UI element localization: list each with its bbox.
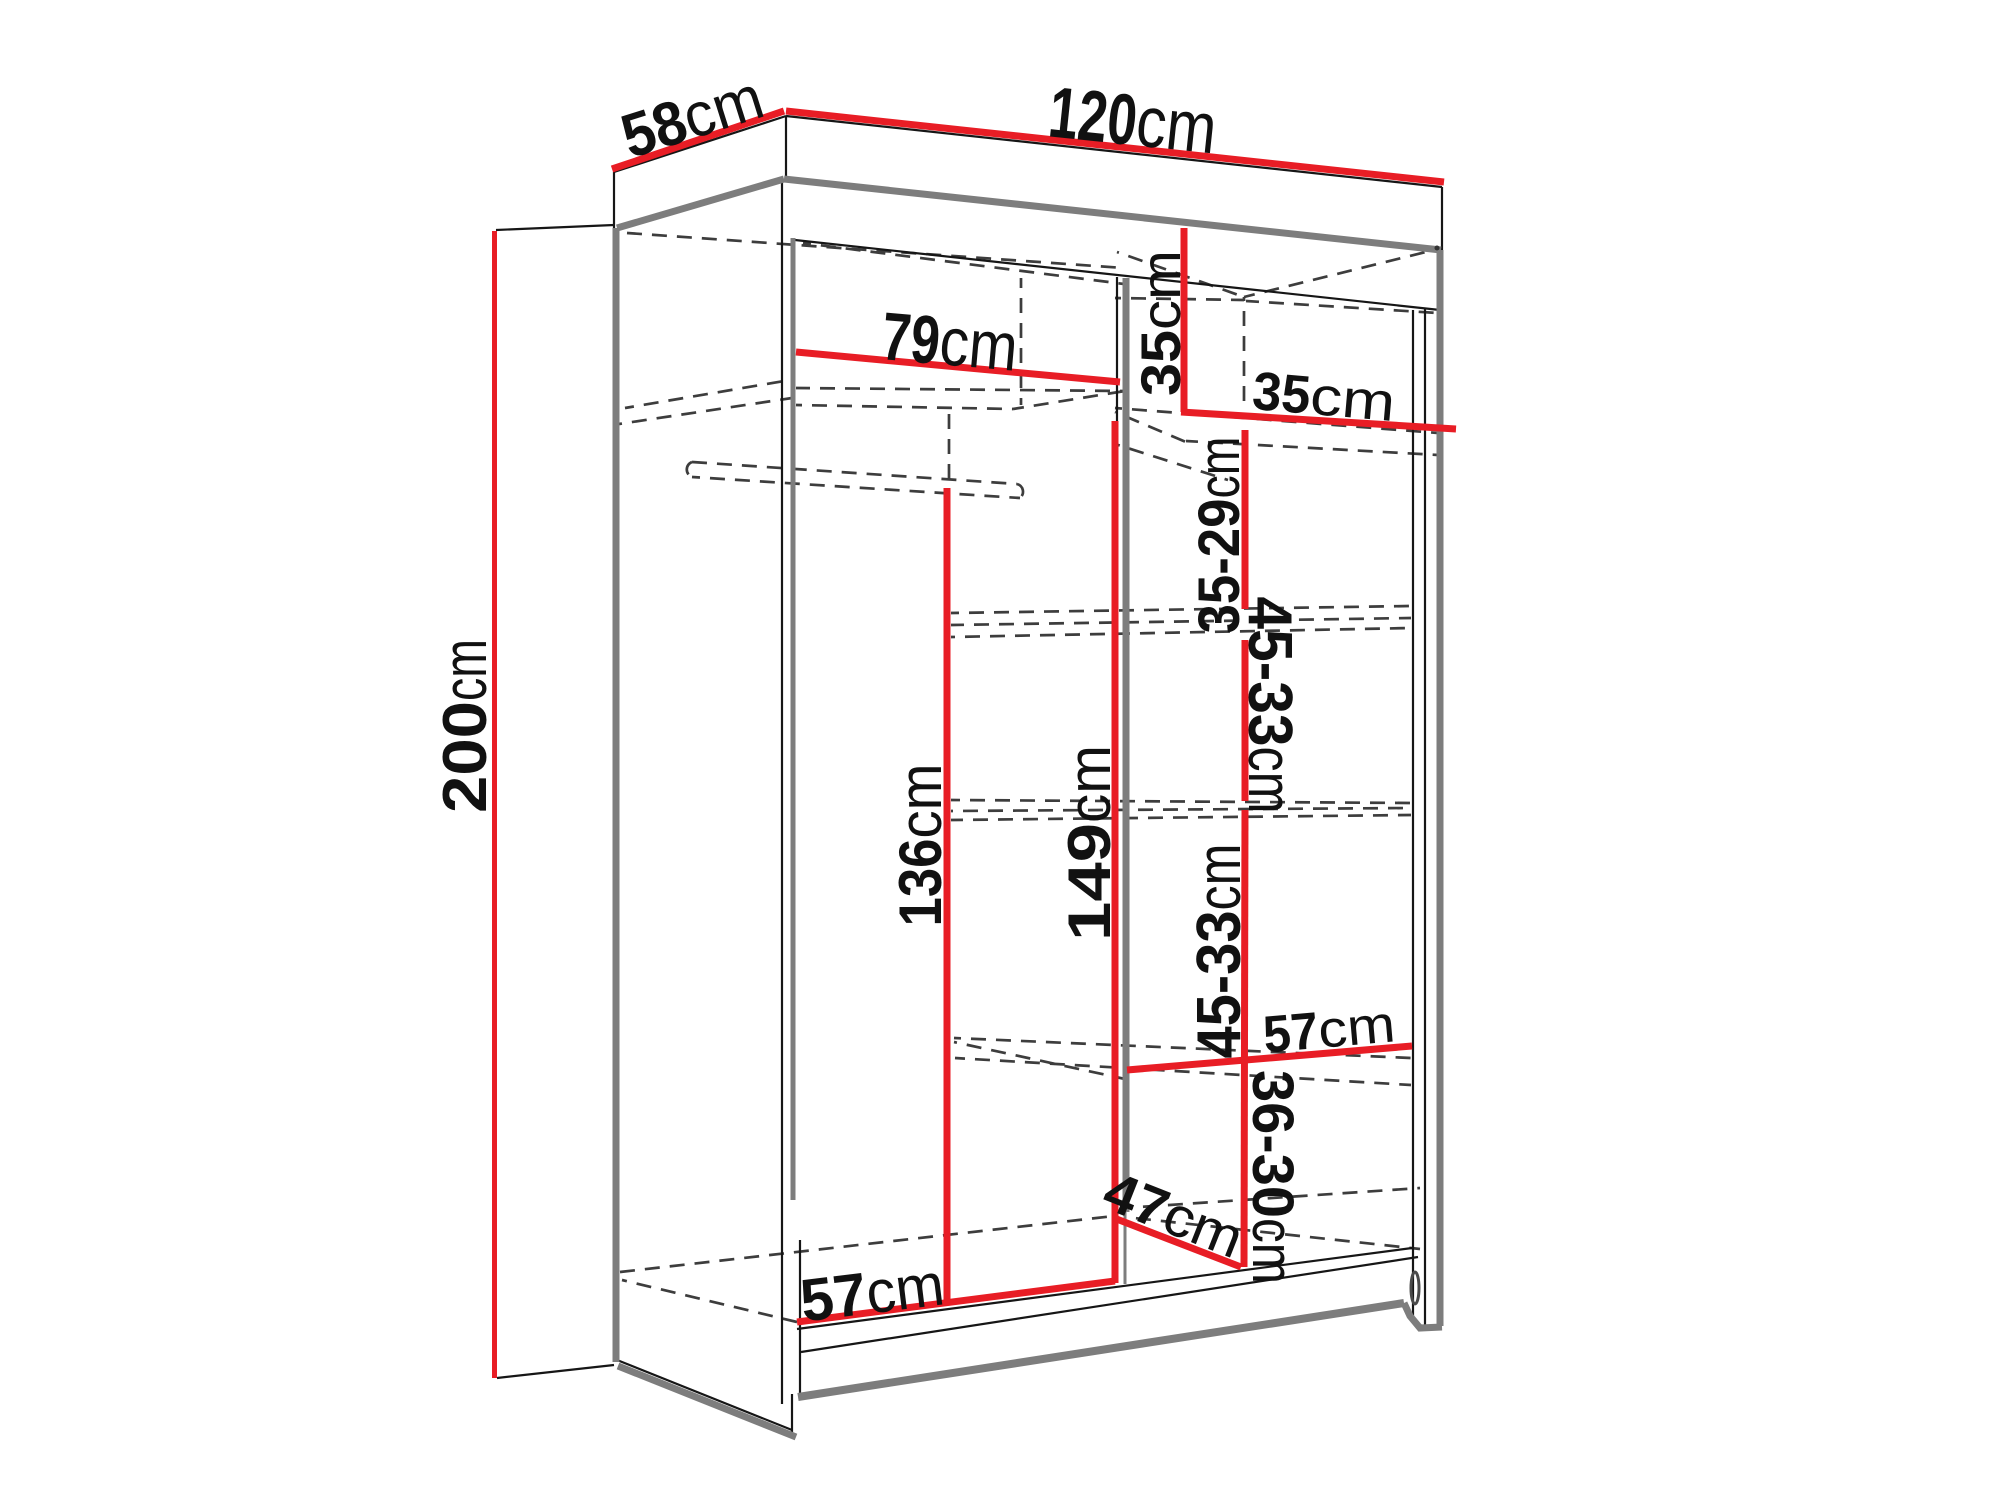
svg-text:36-30cm: 36-30cm bbox=[1240, 1070, 1305, 1284]
svg-text:35cm: 35cm bbox=[1250, 361, 1398, 433]
svg-text:200cm: 200cm bbox=[431, 639, 500, 813]
svg-text:79cm: 79cm bbox=[879, 298, 1021, 386]
svg-text:57cm: 57cm bbox=[1261, 995, 1398, 1064]
svg-text:136cm: 136cm bbox=[887, 764, 954, 927]
svg-text:45-33cm: 45-33cm bbox=[1185, 844, 1254, 1059]
svg-text:149cm: 149cm bbox=[1056, 745, 1123, 941]
svg-text:35cm: 35cm bbox=[1129, 250, 1192, 396]
svg-text:45-33cm: 45-33cm bbox=[1235, 597, 1304, 814]
